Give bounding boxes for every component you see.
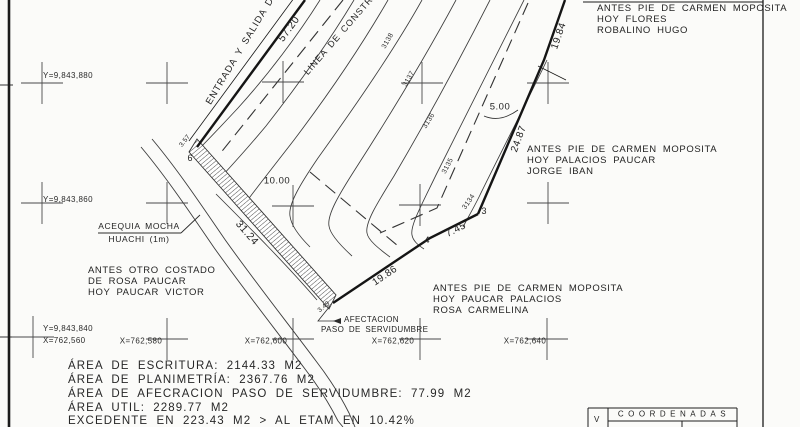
neighbor-west-line2: DE ROSA PAUCAR — [88, 276, 215, 287]
neighbor-west-line3: HOY PAUCAR VICTOR — [88, 287, 215, 298]
vertex-3: 3 — [481, 206, 486, 216]
acequia-label-line2: HUACHI (1m) — [108, 234, 169, 244]
neighbor-south-line3: ROSA CARMELINA — [433, 305, 623, 316]
survey-plan-sheet: ENTRADA Y SALIDA DE LINEA DE CONSTRUCCIO… — [0, 0, 800, 427]
area-escritura: ÁREA DE ESCRITURA: 2144.33 M2 — [68, 360, 303, 372]
neighbor-north-line1: ANTES PIE DE CARMEN MOPOSITA — [597, 3, 787, 14]
neighbor-south: ANTES PIE DE CARMEN MOPOSITA HOY PAUCAR … — [433, 283, 623, 316]
area-afectacion-servidumbre: ÁREA DE AFECRACION PASO DE SERVIDUMBRE: … — [68, 388, 472, 400]
servidumbre-leader-arrow — [333, 318, 341, 324]
grid-y-9843880: Y=9,843,880 — [43, 71, 93, 80]
area-excedente: EXCEDENTE EN 223.43 M2 > AL ETAM EN 10.4… — [68, 415, 415, 427]
acequia-label-line1: ACEQUIA MOCHA — [98, 221, 180, 231]
neighbor-east-line2: HOY PALACIOS PAUCAR — [527, 155, 717, 166]
area-planimetria: ÁREA DE PLANIMETRÍA: 2367.76 M2 — [68, 374, 315, 386]
grid-x-762560: X=762,560 — [43, 336, 86, 345]
grid-x-762640: X=762,640 — [504, 337, 547, 346]
grid-y-9843840: Y=9,843,840 — [43, 324, 93, 333]
grid-x-762620: X=762,620 — [372, 337, 415, 346]
coordinates-table-v-header: V — [594, 415, 600, 424]
neighbor-west-line1: ANTES OTRO COSTADO — [88, 265, 215, 276]
neighbor-south-line2: HOY PAUCAR PALACIOS — [433, 294, 623, 305]
neighbor-south-line1: ANTES PIE DE CARMEN MOPOSITA — [433, 283, 623, 294]
vertex-4: 4 — [424, 235, 429, 245]
neighbor-west: ANTES OTRO COSTADO DE ROSA PAUCAR HOY PA… — [88, 265, 215, 298]
neighbor-north: ANTES PIE DE CARMEN MOPOSITA HOY FLORES … — [597, 3, 787, 36]
area-util: ÁREA UTIL: 2289.77 M2 — [68, 402, 229, 414]
grid-y-9843860: Y=9,843,860 — [43, 195, 93, 204]
coordinates-table-header: COORDENADAS — [618, 410, 730, 419]
neighbor-east: ANTES PIE DE CARMEN MOPOSITA HOY PALACIO… — [527, 144, 717, 177]
dim-setback-10-00: 10.00 — [264, 176, 290, 187]
vertex-6: 6 — [187, 153, 192, 163]
servidumbre-callout-line1: AFECTACION — [344, 315, 399, 324]
grid-x-762580: X=762,580 — [120, 337, 163, 346]
neighbor-east-line1: ANTES PIE DE CARMEN MOPOSITA — [527, 144, 717, 155]
neighbor-north-line2: HOY FLORES — [597, 14, 787, 25]
neighbor-north-line3: ROBALINO HUGO — [597, 25, 787, 36]
grid-x-762600: X=762,600 — [245, 337, 288, 346]
neighbor-east-line3: JORGE IBAN — [527, 166, 717, 177]
dim-setback-5-00: 5.00 — [490, 102, 511, 113]
servidumbre-callout-line2: PASO DE SERVIDUMBRE — [321, 325, 428, 334]
